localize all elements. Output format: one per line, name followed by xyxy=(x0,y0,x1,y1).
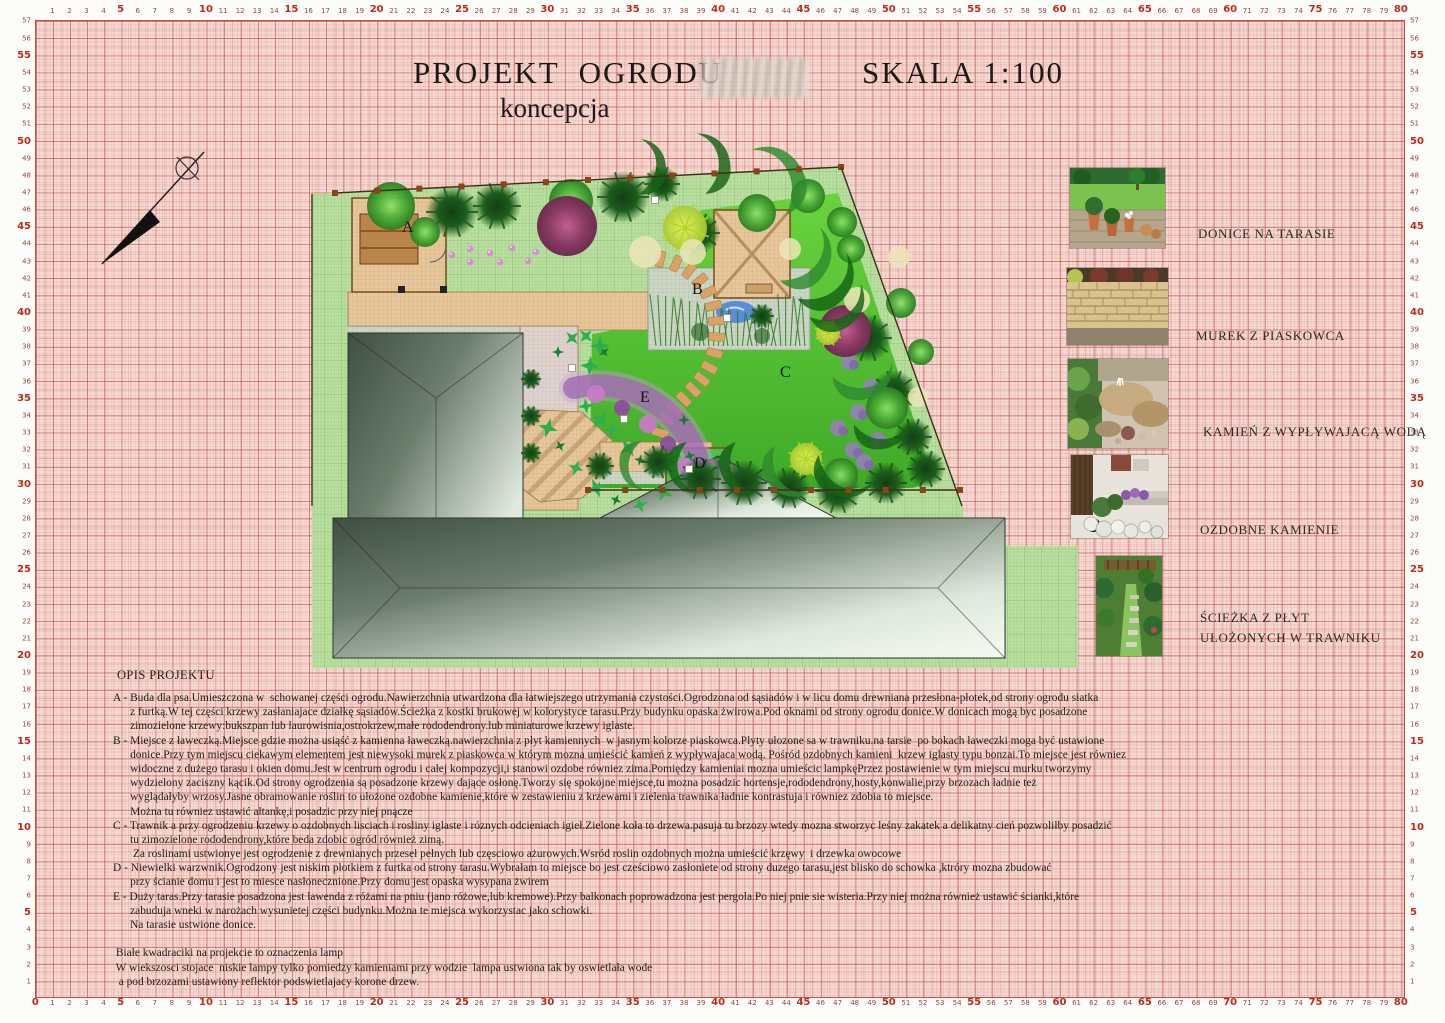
ruler-number: 34 xyxy=(611,8,620,15)
ruler-number: 37 xyxy=(662,1000,671,1007)
ruler-number: 46 xyxy=(816,8,825,15)
ruler-number: 52 xyxy=(1410,104,1419,111)
ruler-number: 16 xyxy=(1410,721,1419,728)
ruler-number: 54 xyxy=(22,69,31,76)
ruler-number: 56 xyxy=(1410,35,1419,42)
ruler-number: 49 xyxy=(22,155,31,162)
ruler-number: 48 xyxy=(1410,172,1419,179)
ruler-number: 45 xyxy=(796,5,810,15)
ruler-number: 80 xyxy=(1394,998,1408,1008)
ruler-number: 16 xyxy=(304,1000,313,1007)
ruler-number: 77 xyxy=(1345,1000,1354,1007)
ruler-number: 51 xyxy=(901,1000,910,1007)
ruler-number: 56 xyxy=(987,8,996,15)
ruler-number: 49 xyxy=(867,8,876,15)
ruler-number: 18 xyxy=(338,8,347,15)
ruler-number: 12 xyxy=(22,790,31,797)
ruler-number: 53 xyxy=(936,8,945,15)
ruler-number: 29 xyxy=(1410,498,1419,505)
ruler-number: 19 xyxy=(22,670,31,677)
ruler-number: 35 xyxy=(626,5,640,15)
ruler-number: 36 xyxy=(22,378,31,385)
ruler-number: 58 xyxy=(1021,8,1030,15)
ruler-number: 1 xyxy=(50,8,54,15)
ruler-number: 57 xyxy=(22,18,31,25)
garden-plan-drawing: ABCDE xyxy=(0,0,1445,1023)
ruler-number: 44 xyxy=(1410,241,1419,248)
ruler-number: 22 xyxy=(1410,618,1419,625)
ruler-number: 42 xyxy=(22,275,31,282)
ruler-number: 40 xyxy=(711,5,725,15)
ruler-number: 22 xyxy=(406,8,415,15)
ruler-number: 49 xyxy=(867,1000,876,1007)
ruler-number: 46 xyxy=(22,207,31,214)
ruler-number: 41 xyxy=(731,8,740,15)
ruler-number: 29 xyxy=(526,8,535,15)
ruler-number: 52 xyxy=(918,8,927,15)
ruler-number: 5 xyxy=(117,998,124,1008)
ruler-number: 16 xyxy=(22,721,31,728)
ruler-number: 17 xyxy=(1410,704,1419,711)
ruler-number: 28 xyxy=(22,515,31,522)
ruler-number: 39 xyxy=(697,1000,706,1007)
ruler-number: 0 xyxy=(32,998,39,1008)
ruler-number: 42 xyxy=(748,1000,757,1007)
ruler-number: 55 xyxy=(967,998,981,1008)
ruler-number: 79 xyxy=(1379,8,1388,15)
ruler-number: 7 xyxy=(153,8,157,15)
plan-label-B: B xyxy=(692,281,703,298)
ruler-number: 60 xyxy=(1223,5,1237,15)
plan-label-E: E xyxy=(640,389,650,406)
ruler-number: 50 xyxy=(882,998,896,1008)
ruler-number: 17 xyxy=(321,8,330,15)
ruler-number: 30 xyxy=(540,5,554,15)
ruler-number: 50 xyxy=(1410,137,1424,147)
ruler-number: 43 xyxy=(765,1000,774,1007)
ruler-number: 31 xyxy=(560,1000,569,1007)
ruler-number: 27 xyxy=(492,8,501,15)
ruler-number: 6 xyxy=(135,8,139,15)
ruler-number: 2 xyxy=(27,961,31,968)
ruler-number: 7 xyxy=(153,1000,157,1007)
ruler-number: 54 xyxy=(953,1000,962,1007)
ruler-number: 6 xyxy=(135,1000,139,1007)
ruler-number: 30 xyxy=(540,998,554,1008)
north-arrow xyxy=(102,152,204,264)
ruler-number: 42 xyxy=(748,8,757,15)
ruler-number: 48 xyxy=(850,8,859,15)
ruler-number: 30 xyxy=(1410,480,1424,490)
ruler-number: 13 xyxy=(253,1000,262,1007)
ruler-number: 28 xyxy=(509,8,518,15)
ruler-number: 20 xyxy=(370,998,384,1008)
ruler-number: 18 xyxy=(22,687,31,694)
ruler-number: 6 xyxy=(1410,893,1414,900)
ruler-number: 1 xyxy=(27,978,31,985)
ruler-number: 37 xyxy=(22,361,31,368)
ruler-number: 34 xyxy=(611,1000,620,1007)
ruler-number: 9 xyxy=(1410,841,1414,848)
ruler-number: 76 xyxy=(1328,8,1337,15)
ruler-number: 58 xyxy=(1021,1000,1030,1007)
ruler-number: 47 xyxy=(1410,189,1419,196)
ruler-number: 33 xyxy=(594,8,603,15)
ruler-number: 66 xyxy=(1157,1000,1166,1007)
ruler-number: 77 xyxy=(1345,8,1354,15)
ruler-number: 63 xyxy=(1106,1000,1115,1007)
ruler-number: 48 xyxy=(22,172,31,179)
ruler-number: 23 xyxy=(423,1000,432,1007)
ruler-number: 56 xyxy=(22,35,31,42)
ruler-number: 10 xyxy=(199,5,213,15)
ruler-number: 14 xyxy=(270,1000,279,1007)
ruler-number: 15 xyxy=(17,737,31,747)
ruler-number: 24 xyxy=(22,584,31,591)
ruler-number: 50 xyxy=(17,137,31,147)
ruler-number: 31 xyxy=(22,464,31,471)
ruler-number: 51 xyxy=(1410,121,1419,128)
ruler-number: 43 xyxy=(1410,258,1419,265)
ruler-number: 52 xyxy=(22,104,31,111)
ruler-number: 2 xyxy=(67,8,71,15)
ruler-number: 45 xyxy=(1410,222,1424,232)
ruler-number: 27 xyxy=(22,532,31,539)
ruler-number: 67 xyxy=(1175,8,1184,15)
ruler-number: 4 xyxy=(27,927,31,934)
ruler-number: 71 xyxy=(1243,1000,1252,1007)
ruler-number: 72 xyxy=(1260,8,1269,15)
ruler-number: 70 xyxy=(1223,998,1237,1008)
ruler-number: 79 xyxy=(1379,1000,1388,1007)
ruler-number: 66 xyxy=(1157,8,1166,15)
ruler-number: 21 xyxy=(1410,635,1419,642)
ruler-number: 39 xyxy=(22,327,31,334)
ruler-number: 20 xyxy=(370,5,384,15)
ruler-number: 44 xyxy=(782,1000,791,1007)
ruler-number: 33 xyxy=(22,430,31,437)
ruler-number: 54 xyxy=(953,8,962,15)
ruler-number: 55 xyxy=(1410,51,1424,61)
ruler-number: 3 xyxy=(27,944,31,951)
ruler-number: 73 xyxy=(1277,8,1286,15)
ruler-number: 8 xyxy=(170,8,174,15)
ruler-number: 15 xyxy=(284,5,298,15)
ruler-number: 65 xyxy=(1138,998,1152,1008)
ruler-number: 38 xyxy=(679,1000,688,1007)
ruler-number: 3 xyxy=(84,1000,88,1007)
ruler-number: 69 xyxy=(1209,8,1218,15)
ruler-number: 28 xyxy=(509,1000,518,1007)
ruler-number: 73 xyxy=(1277,1000,1286,1007)
ruler-number: 32 xyxy=(1410,447,1419,454)
ruler-number: 47 xyxy=(833,1000,842,1007)
ruler-number: 45 xyxy=(17,222,31,232)
garden-project-sheet: { "title": { "main": "PROJEKT OGRODU", "… xyxy=(0,0,1445,1023)
ruler-number: 26 xyxy=(22,550,31,557)
ruler-number: 59 xyxy=(1038,1000,1047,1007)
ruler-number: 25 xyxy=(1410,565,1424,575)
ruler-number: 26 xyxy=(475,8,484,15)
ruler-number: 78 xyxy=(1362,8,1371,15)
ruler-number: 3 xyxy=(84,8,88,15)
ruler-number: 12 xyxy=(236,8,245,15)
ruler-number: 7 xyxy=(27,875,31,882)
ruler-number: 21 xyxy=(389,8,398,15)
ruler-number: 9 xyxy=(27,841,31,848)
ruler-number: 1 xyxy=(1410,978,1414,985)
ruler-number: 8 xyxy=(27,858,31,865)
ruler-number: 14 xyxy=(270,8,279,15)
ruler-number: 56 xyxy=(987,1000,996,1007)
ruler-number: 12 xyxy=(236,1000,245,1007)
ruler-number: 8 xyxy=(170,1000,174,1007)
ruler-number: 67 xyxy=(1175,1000,1184,1007)
ruler-number: 39 xyxy=(1410,327,1419,334)
ruler-number: 53 xyxy=(1410,87,1419,94)
ruler-number: 11 xyxy=(219,1000,228,1007)
ruler-number: 49 xyxy=(1410,155,1419,162)
ruler-number: 24 xyxy=(1410,584,1419,591)
ruler-number: 19 xyxy=(1410,670,1419,677)
ruler-number: 36 xyxy=(645,1000,654,1007)
ruler-number: 38 xyxy=(679,8,688,15)
ruler-number: 18 xyxy=(338,1000,347,1007)
ruler-number: 39 xyxy=(697,8,706,15)
ruler-number: 75 xyxy=(1309,998,1323,1008)
ruler-number: 69 xyxy=(1209,1000,1218,1007)
ruler-number: 14 xyxy=(1410,755,1419,762)
ruler-number: 61 xyxy=(1072,8,1081,15)
ruler-number: 4 xyxy=(101,8,105,15)
ruler-number: 10 xyxy=(1410,823,1424,833)
ruler-number: 27 xyxy=(492,1000,501,1007)
ruler-number: 9 xyxy=(187,8,191,15)
ruler-number: 13 xyxy=(1410,773,1419,780)
ruler-number: 3 xyxy=(1410,944,1414,951)
ruler-number: 14 xyxy=(22,755,31,762)
ruler-number: 21 xyxy=(22,635,31,642)
ruler-number: 50 xyxy=(882,5,896,15)
ruler-number: 68 xyxy=(1192,8,1201,15)
ruler-number: 21 xyxy=(389,1000,398,1007)
ruler-number: 35 xyxy=(626,998,640,1008)
ruler-number: 33 xyxy=(594,1000,603,1007)
ruler-number: 47 xyxy=(22,189,31,196)
ruler-number: 71 xyxy=(1243,8,1252,15)
ruler-number: 35 xyxy=(1410,394,1424,404)
ruler-number: 55 xyxy=(17,51,31,61)
ruler-number: 38 xyxy=(22,344,31,351)
ruler-number: 43 xyxy=(765,8,774,15)
ruler-number: 19 xyxy=(355,8,364,15)
ruler-number: 43 xyxy=(22,258,31,265)
ruler-number: 15 xyxy=(1410,737,1424,747)
ruler-number: 28 xyxy=(1410,515,1419,522)
ruler-number: 76 xyxy=(1328,1000,1337,1007)
ruler-number: 40 xyxy=(711,998,725,1008)
ruler-number: 78 xyxy=(1362,1000,1371,1007)
ruler-number: 32 xyxy=(22,447,31,454)
ruler-number: 61 xyxy=(1072,1000,1081,1007)
ruler-number: 11 xyxy=(1410,807,1419,814)
ruler-number: 59 xyxy=(1038,8,1047,15)
ruler-number: 26 xyxy=(475,1000,484,1007)
ruler-number: 20 xyxy=(17,651,31,661)
ruler-number: 47 xyxy=(833,8,842,15)
ruler-number: 34 xyxy=(1410,412,1419,419)
ruler-number: 53 xyxy=(22,87,31,94)
ruler-number: 36 xyxy=(1410,378,1419,385)
ruler-number: 2 xyxy=(67,1000,71,1007)
ruler-number: 54 xyxy=(1410,69,1419,76)
ruler-number: 2 xyxy=(1410,961,1414,968)
ruler-number: 75 xyxy=(1309,5,1323,15)
ruler-number: 41 xyxy=(731,1000,740,1007)
ruler-number: 42 xyxy=(1410,275,1419,282)
ruler-number: 55 xyxy=(967,5,981,15)
ruler-number: 48 xyxy=(850,1000,859,1007)
ruler-number: 1 xyxy=(50,1000,54,1007)
ruler-number: 23 xyxy=(1410,601,1419,608)
ruler-number: 37 xyxy=(662,8,671,15)
ruler-number: 23 xyxy=(22,601,31,608)
ruler-number: 12 xyxy=(1410,790,1419,797)
plan-label-A: A xyxy=(402,219,414,236)
ruler-number: 20 xyxy=(1410,651,1424,661)
ruler-number: 51 xyxy=(901,8,910,15)
ruler-number: 45 xyxy=(796,998,810,1008)
ruler-number: 68 xyxy=(1192,1000,1201,1007)
ruler-number: 36 xyxy=(645,8,654,15)
ruler-number: 7 xyxy=(1410,875,1414,882)
ruler-number: 5 xyxy=(1410,908,1417,918)
ruler-number: 63 xyxy=(1106,8,1115,15)
ruler-number: 64 xyxy=(1123,1000,1132,1007)
ruler-number: 80 xyxy=(1394,5,1408,15)
ruler-number: 10 xyxy=(17,823,31,833)
ruler-number: 11 xyxy=(22,807,31,814)
ruler-number: 65 xyxy=(1138,5,1152,15)
ruler-number: 37 xyxy=(1410,361,1419,368)
ruler-number: 17 xyxy=(22,704,31,711)
ruler-number: 30 xyxy=(17,480,31,490)
ruler-number: 41 xyxy=(1410,292,1419,299)
ruler-number: 74 xyxy=(1294,8,1303,15)
ruler-number: 40 xyxy=(17,308,31,318)
ruler-number: 27 xyxy=(1410,532,1419,539)
bench xyxy=(746,284,772,293)
ruler-number: 6 xyxy=(27,893,31,900)
ruler-number: 4 xyxy=(101,1000,105,1007)
ruler-number: 64 xyxy=(1123,8,1132,15)
ruler-number: 35 xyxy=(17,394,31,404)
ruler-number: 72 xyxy=(1260,1000,1269,1007)
ruler-number: 62 xyxy=(1089,8,1098,15)
ruler-number: 62 xyxy=(1089,1000,1098,1007)
ruler-number: 40 xyxy=(1410,308,1424,318)
ruler-number: 74 xyxy=(1294,1000,1303,1007)
ruler-number: 29 xyxy=(22,498,31,505)
ruler-number: 17 xyxy=(321,1000,330,1007)
ruler-number: 34 xyxy=(22,412,31,419)
ruler-number: 10 xyxy=(199,998,213,1008)
ruler-number: 29 xyxy=(526,1000,535,1007)
ruler-number: 41 xyxy=(22,292,31,299)
ruler-number: 60 xyxy=(1053,998,1067,1008)
ruler-number: 44 xyxy=(22,241,31,248)
ruler-number: 26 xyxy=(1410,550,1419,557)
ruler-number: 15 xyxy=(284,998,298,1008)
ruler-number: 16 xyxy=(304,8,313,15)
ruler-number: 60 xyxy=(1053,5,1067,15)
ruler-number: 19 xyxy=(355,1000,364,1007)
ruler-number: 46 xyxy=(1410,207,1419,214)
ruler-number: 44 xyxy=(782,8,791,15)
ruler-number: 52 xyxy=(918,1000,927,1007)
ruler-number: 25 xyxy=(455,998,469,1008)
ruler-number: 32 xyxy=(577,8,586,15)
ruler-number: 31 xyxy=(560,8,569,15)
ruler-number: 22 xyxy=(22,618,31,625)
ruler-number: 24 xyxy=(441,1000,450,1007)
plan-label-C: C xyxy=(780,364,791,381)
ruler-number: 57 xyxy=(1004,8,1013,15)
ruler-number: 5 xyxy=(117,5,124,15)
ruler-number: 13 xyxy=(253,8,262,15)
ruler-number: 51 xyxy=(22,121,31,128)
ruler-number: 33 xyxy=(1410,430,1419,437)
plan-label-D: D xyxy=(694,455,706,472)
ruler-number: 24 xyxy=(441,8,450,15)
ruler-number: 13 xyxy=(22,773,31,780)
ruler-number: 8 xyxy=(1410,858,1414,865)
ruler-number: 25 xyxy=(17,565,31,575)
ruler-number: 32 xyxy=(577,1000,586,1007)
ruler-number: 23 xyxy=(423,8,432,15)
ruler-number: 9 xyxy=(187,1000,191,1007)
ruler-number: 46 xyxy=(816,1000,825,1007)
ruler-number: 18 xyxy=(1410,687,1419,694)
ruler-number: 53 xyxy=(936,1000,945,1007)
ruler-number: 11 xyxy=(219,8,228,15)
ruler-number: 57 xyxy=(1410,18,1419,25)
ruler-number: 22 xyxy=(406,1000,415,1007)
ruler-number: 38 xyxy=(1410,344,1419,351)
ruler-number: 57 xyxy=(1004,1000,1013,1007)
ruler-number: 4 xyxy=(1410,927,1414,934)
ruler-number: 25 xyxy=(455,5,469,15)
ruler-number: 31 xyxy=(1410,464,1419,471)
ruler-number: 5 xyxy=(24,908,31,918)
